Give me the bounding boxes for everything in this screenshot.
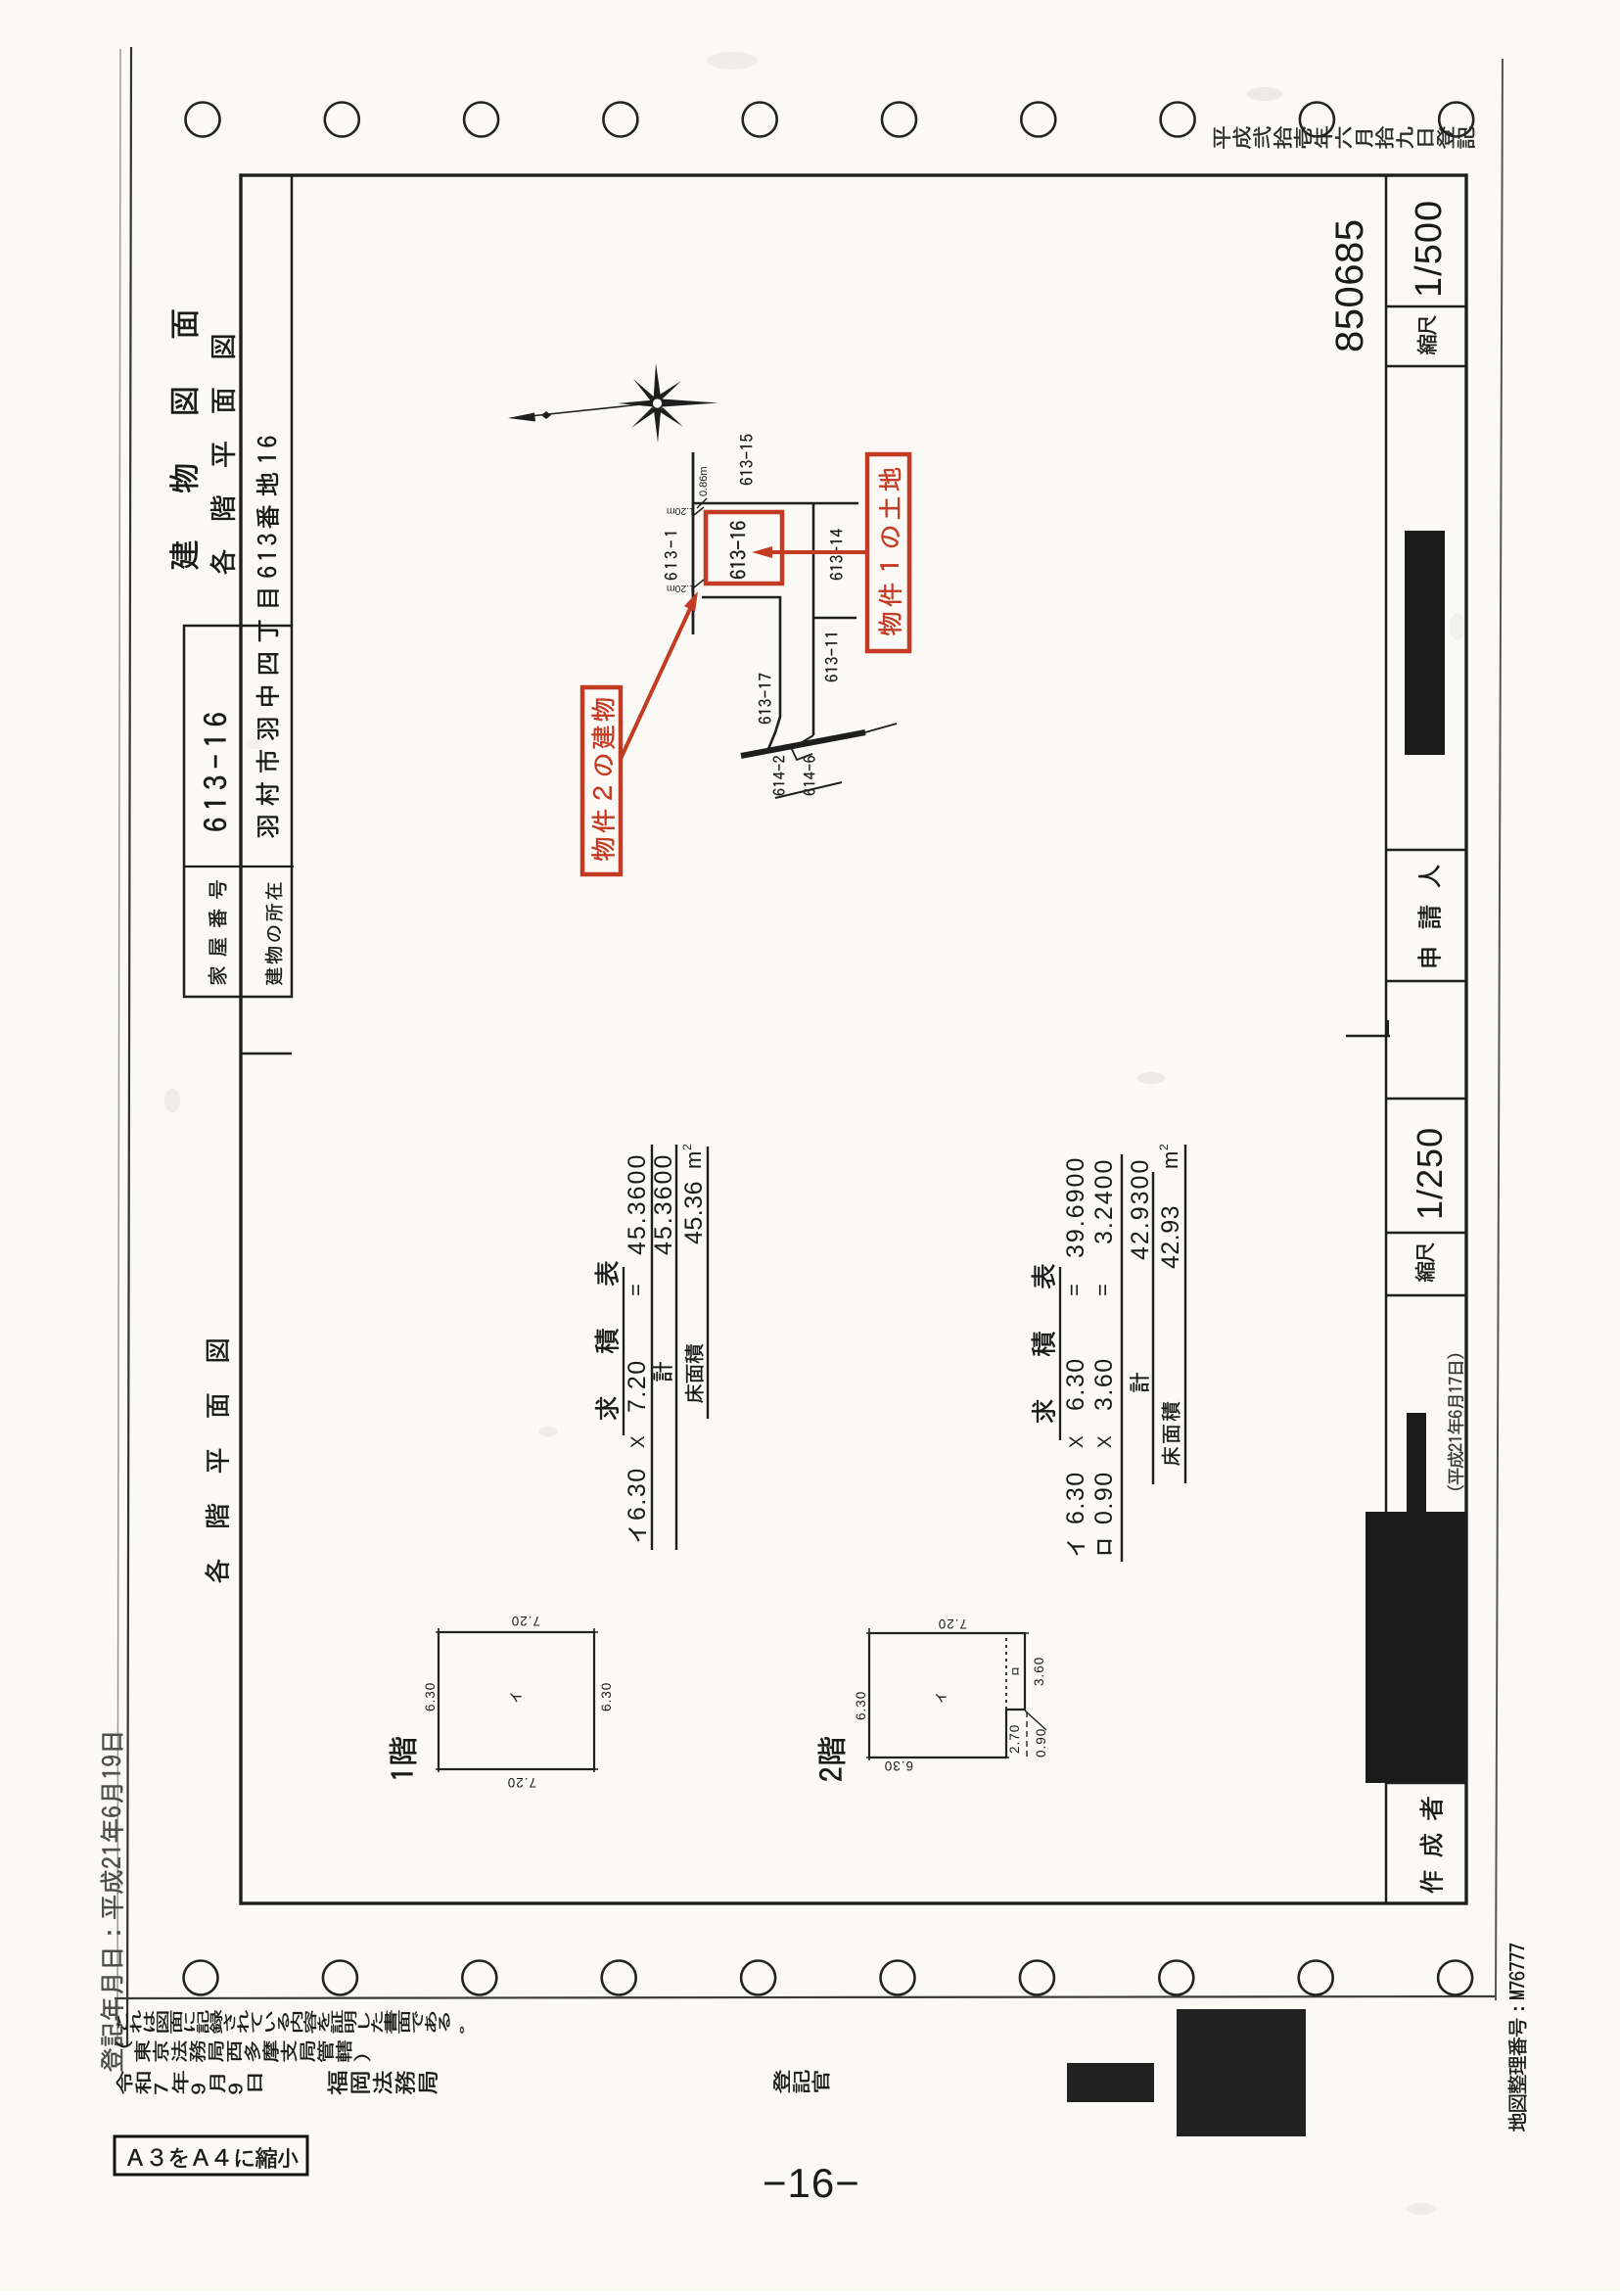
- svg-text:1/500: 1/500: [1409, 200, 1450, 298]
- svg-text:39.6900: 39.6900: [1062, 1156, 1089, 1258]
- svg-text:7.20: 7.20: [507, 1775, 536, 1790]
- svg-text:7.20: 7.20: [624, 1359, 651, 1413]
- svg-text:6.30: 6.30: [624, 1467, 651, 1521]
- svg-text:m: m: [1158, 1151, 1182, 1169]
- svg-text:6.30: 6.30: [423, 1682, 438, 1711]
- svg-text:850685: 850685: [1328, 219, 1371, 352]
- svg-text:45.3600: 45.3600: [650, 1153, 677, 1255]
- svg-text:3.60: 3.60: [1032, 1657, 1046, 1686]
- svg-text:6.30: 6.30: [1062, 1471, 1089, 1524]
- svg-text:45.3600: 45.3600: [624, 1153, 651, 1255]
- svg-text:X: X: [1095, 1435, 1116, 1448]
- svg-text:6.30: 6.30: [884, 1758, 913, 1773]
- svg-text:0.90: 0.90: [1034, 1728, 1048, 1757]
- svg-text:3.2400: 3.2400: [1090, 1158, 1118, 1244]
- svg-text:=: =: [1062, 1284, 1087, 1296]
- svg-text:6.30: 6.30: [1062, 1357, 1089, 1411]
- svg-text:X: X: [628, 1435, 649, 1448]
- svg-text:X: X: [1067, 1435, 1088, 1448]
- svg-text:42.9300: 42.9300: [1127, 1158, 1154, 1260]
- svg-text:2.70: 2.70: [1007, 1724, 1022, 1754]
- svg-text:m: m: [681, 1151, 706, 1169]
- svg-text:7.20: 7.20: [511, 1614, 540, 1628]
- svg-text:6.30: 6.30: [599, 1682, 614, 1711]
- svg-text:=: =: [1090, 1284, 1115, 1296]
- svg-text:−16−: −16−: [763, 2160, 860, 2206]
- svg-text:42.93: 42.93: [1157, 1205, 1184, 1269]
- svg-text:0.86m: 0.86m: [698, 466, 710, 496]
- svg-text:1.20m: 1.20m: [667, 505, 695, 517]
- svg-text:2: 2: [680, 1144, 694, 1150]
- svg-text:0.90: 0.90: [1090, 1471, 1118, 1524]
- svg-text:45.36: 45.36: [680, 1181, 708, 1244]
- svg-text:1.20m: 1.20m: [667, 583, 695, 594]
- svg-text:7.20: 7.20: [938, 1617, 967, 1631]
- svg-text:1/250: 1/250: [1410, 1127, 1450, 1220]
- svg-text:3.60: 3.60: [1090, 1357, 1118, 1411]
- svg-text:2: 2: [1157, 1144, 1171, 1150]
- svg-text:6.30: 6.30: [854, 1691, 868, 1720]
- svg-text:=: =: [624, 1284, 648, 1296]
